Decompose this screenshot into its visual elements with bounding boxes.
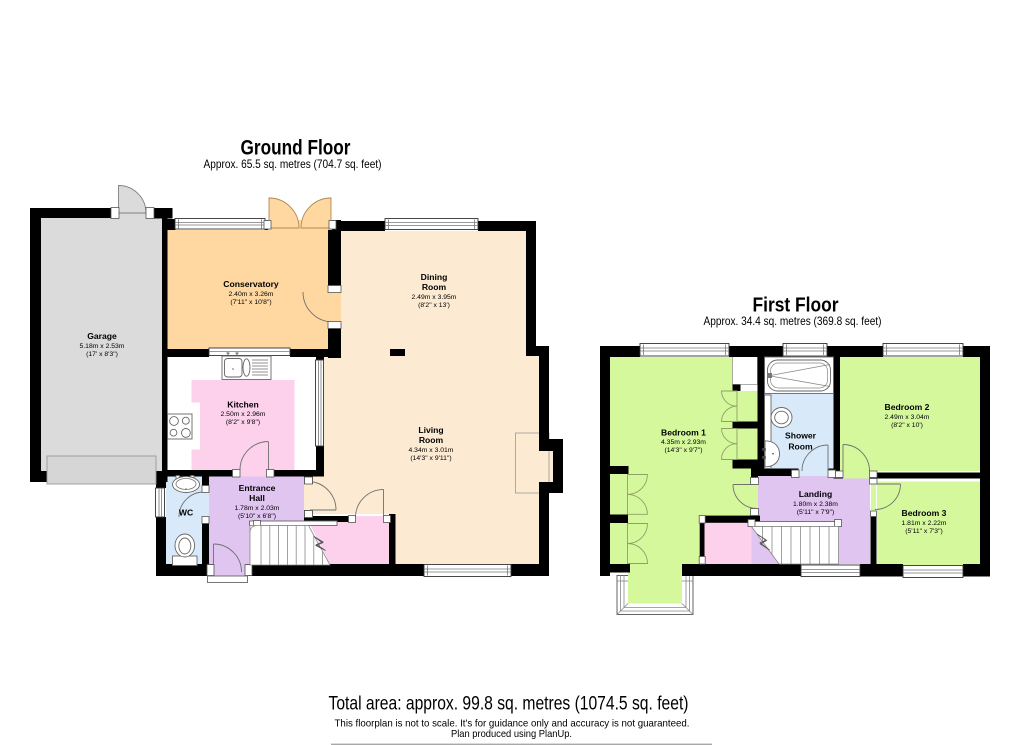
svg-text:2.49m x 3.95m: 2.49m x 3.95m	[412, 294, 457, 301]
svg-text:Living: Living	[418, 425, 443, 435]
svg-text:Shower: Shower	[785, 431, 817, 441]
svg-text:Conservatory: Conservatory	[223, 279, 279, 289]
svg-text:(8'2" x 10'): (8'2" x 10')	[891, 422, 923, 429]
svg-text:Approx. 34.4 sq. metres (369.8: Approx. 34.4 sq. metres (369.8 sq. feet)	[704, 315, 882, 328]
svg-text:(5'10" x 6'8"): (5'10" x 6'8")	[238, 513, 276, 520]
svg-text:Approx. 65.5 sq. metres (704.7: Approx. 65.5 sq. metres (704.7 sq. feet)	[204, 158, 382, 171]
svg-text:(7'11" x 10'8"): (7'11" x 10'8")	[230, 299, 271, 306]
svg-text:Garage: Garage	[87, 331, 117, 341]
svg-text:4.34m x 3.01m: 4.34m x 3.01m	[409, 447, 454, 454]
svg-text:1.80m x 2.38m: 1.80m x 2.38m	[793, 501, 838, 508]
svg-text:Kitchen: Kitchen	[227, 400, 259, 410]
svg-text:1.78m x 2.03m: 1.78m x 2.03m	[235, 505, 280, 512]
svg-text:Plan produced using PlanUp.: Plan produced using PlanUp.	[451, 729, 572, 740]
svg-text:Hall: Hall	[249, 493, 265, 503]
svg-text:Bedroom 2: Bedroom 2	[885, 402, 930, 412]
svg-text:(14'3" x 9'11"): (14'3" x 9'11")	[410, 455, 451, 462]
svg-text:Ground Floor: Ground Floor	[241, 137, 351, 160]
svg-text:(5'11" x 7'9"): (5'11" x 7'9")	[797, 509, 835, 516]
svg-text:(5'11" x 7'3"): (5'11" x 7'3")	[905, 528, 943, 535]
svg-text:WC: WC	[179, 508, 193, 518]
svg-text:Room: Room	[422, 282, 447, 292]
svg-text:5.18m x 2.53m: 5.18m x 2.53m	[80, 343, 125, 350]
svg-text:4.35m x 2.93m: 4.35m x 2.93m	[661, 439, 706, 446]
svg-text:Dining: Dining	[421, 272, 448, 282]
svg-text:Room: Room	[788, 442, 813, 452]
svg-text:(17' x 8'3"): (17' x 8'3")	[86, 351, 118, 358]
svg-text:Entrance: Entrance	[239, 483, 276, 493]
svg-text:2.50m x 2.96m: 2.50m x 2.96m	[221, 411, 266, 418]
svg-text:Room: Room	[419, 435, 444, 445]
svg-text:Bedroom 3: Bedroom 3	[902, 508, 947, 518]
svg-text:1.81m x 2.22m: 1.81m x 2.22m	[902, 520, 947, 527]
svg-text:Landing: Landing	[799, 489, 832, 499]
svg-text:Bedroom 1: Bedroom 1	[661, 428, 706, 438]
svg-text:First Floor: First Floor	[753, 293, 839, 316]
svg-text:2.49m x 3.04m: 2.49m x 3.04m	[885, 414, 930, 421]
svg-text:(8'2" x 9'8"): (8'2" x 9'8")	[226, 419, 260, 426]
svg-text:2.40m x 3.26m: 2.40m x 3.26m	[229, 291, 274, 298]
svg-text:This floorplan is not to scale: This floorplan is not to scale. It's for…	[335, 718, 690, 729]
svg-text:(8'2" x 13'): (8'2" x 13')	[418, 302, 450, 309]
svg-text:Total area: approx. 99.8 sq. m: Total area: approx. 99.8 sq. metres (107…	[329, 694, 689, 715]
svg-text:(14'3" x 9'7"): (14'3" x 9'7")	[664, 447, 702, 454]
